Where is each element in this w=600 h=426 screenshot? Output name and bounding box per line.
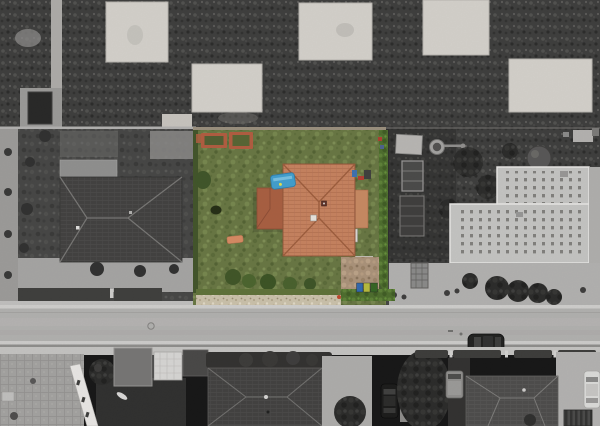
aerial-photo [0,0,600,426]
photo-grain-overlay [0,0,600,426]
aerial-photo-canvas [0,0,600,426]
